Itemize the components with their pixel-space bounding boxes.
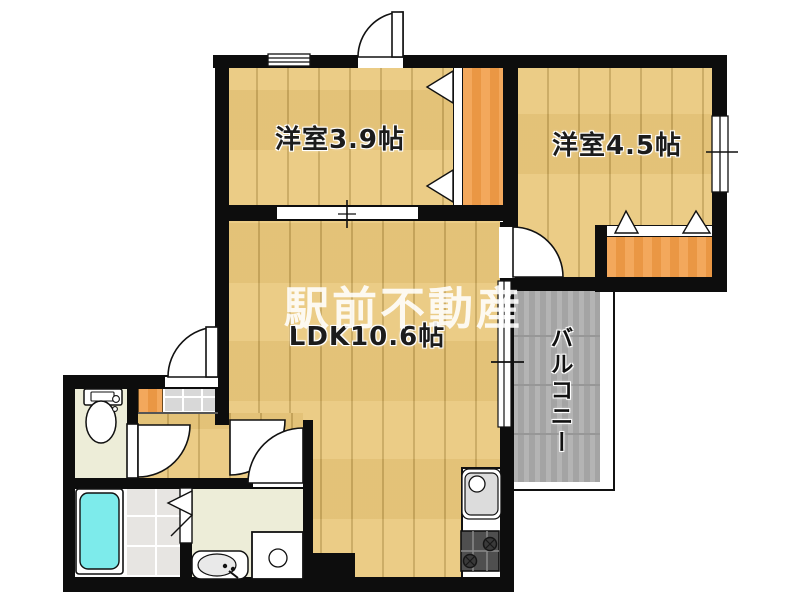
opening-tick [338, 200, 356, 228]
room45-door-arc [513, 227, 563, 277]
toilet-icon [84, 389, 122, 443]
window-right-icon [706, 116, 738, 192]
washer-pan-icon [252, 532, 303, 579]
washbasin-icon [192, 551, 248, 579]
floor-plan: 洋室3.9帖 洋室4.5帖 LDK10.6帖 バルコニー 駅前不動産 [0, 0, 800, 600]
entry-door-arc-top [358, 12, 403, 57]
bath-folding-door-icon [168, 488, 192, 543]
bathtub-icon [76, 489, 123, 574]
balcony-label: バルコニー [542, 326, 576, 471]
stove-icon [461, 531, 499, 571]
toilet-door-arc [127, 424, 190, 478]
window-top-icon [268, 54, 310, 66]
closet-4-5-door-triangles [615, 211, 710, 233]
watermark-text: 駅前不動産 [284, 272, 524, 337]
closet-3-9-door-triangles [427, 71, 453, 202]
room-4-5-label: 洋室4.5帖 [532, 125, 702, 162]
kitchen-sink-icon [462, 469, 501, 519]
genkan-door-arc [168, 327, 218, 377]
room-3-9-label: 洋室3.9帖 [255, 119, 425, 156]
